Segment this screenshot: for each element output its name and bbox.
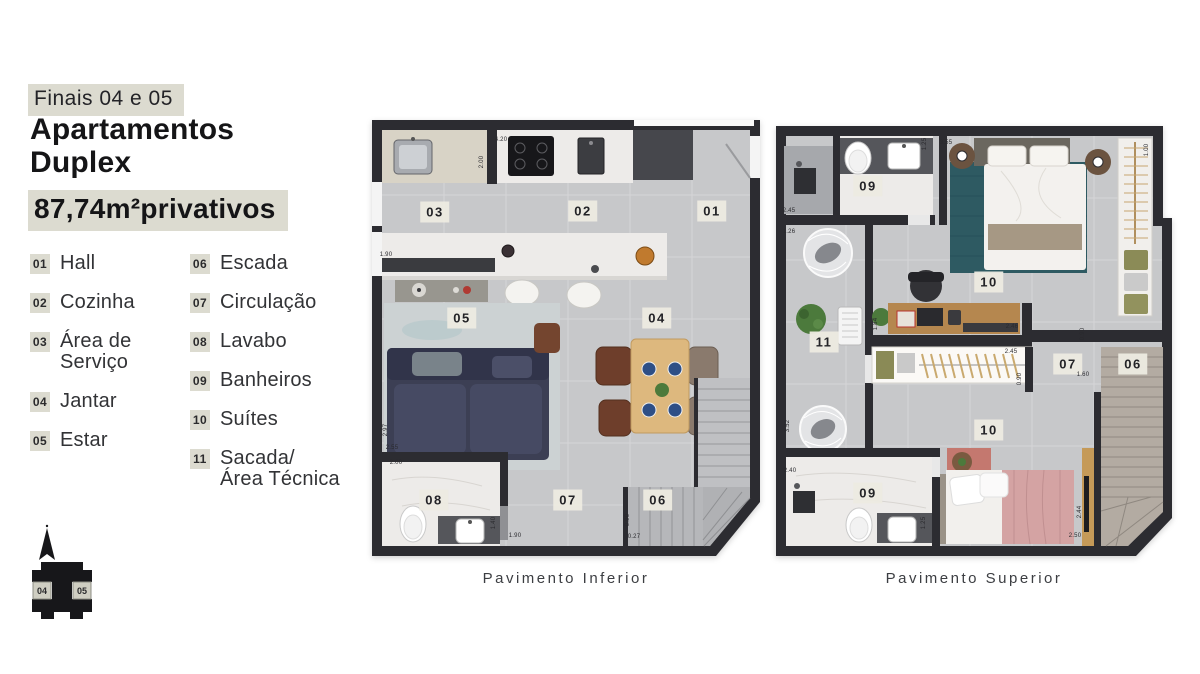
room-label-02: 02: [568, 201, 597, 222]
legend-label: Cozinha: [60, 292, 135, 313]
dimension-label: 2.46: [1006, 324, 1018, 330]
legend-number-badge: 05: [30, 431, 50, 451]
legend-label: Sacada/ Área Técnica: [220, 448, 340, 490]
caption-inferior: Pavimento Inferior: [372, 570, 760, 587]
unit-label-05: 05: [77, 586, 87, 596]
dimension-label: 4.20: [495, 137, 507, 143]
dimension-label: 1.25: [922, 138, 928, 150]
legend-number-badge: 02: [30, 293, 50, 313]
legend-label: Hall: [60, 253, 95, 274]
dimension-label: 2.44: [1077, 506, 1083, 518]
floorplan-superior: 091011070610093.551.251.002.451.261.842.…: [776, 126, 1172, 556]
dimension-label: 1.25: [921, 517, 927, 529]
north-arrow-icon: [30, 524, 64, 567]
room-label-01: 01: [697, 201, 726, 222]
legend-item-03: 03Área de Serviço: [30, 331, 166, 373]
legend-label: Banheiros: [220, 370, 312, 391]
dimension-label: 1.26: [783, 229, 795, 235]
legend-item-09: 09Banheiros: [190, 370, 340, 391]
legend-item-06: 06Escada: [190, 253, 340, 274]
room-label-07: 07: [553, 490, 582, 511]
legend-label: Escada: [220, 253, 288, 274]
legend-item-05: 05Estar: [30, 430, 166, 451]
room-label-09: 09: [853, 176, 882, 197]
legend-column-2: 06Escada07Circulação08Lavabo09Banheiros1…: [190, 253, 340, 508]
page: Finais 04 e 05 Apartamentos Duplex 87,74…: [0, 0, 1200, 674]
room-label-09: 09: [853, 483, 882, 504]
legend-label: Jantar: [60, 391, 117, 412]
legend-item-02: 02Cozinha: [30, 292, 166, 313]
dimension-label: 3.55: [940, 140, 952, 146]
legend-label: Lavabo: [220, 331, 287, 352]
legend-label: Circulação: [220, 292, 316, 313]
dimension-label: 2.45: [783, 208, 795, 214]
room-label-11: 11: [810, 332, 839, 353]
dimension-label: 2.45: [1005, 349, 1017, 355]
dimension-label: 1.90: [509, 533, 521, 539]
room-label-03: 03: [420, 202, 449, 223]
dimension-label: 1.40: [491, 517, 497, 529]
dimension-label: 0.90: [625, 514, 631, 526]
room-label-layer: 03020105040807064.202.001.902.972.552.00…: [372, 120, 760, 556]
room-label-10: 10: [974, 272, 1003, 293]
legend-column-1: 01Hall02Cozinha03Área de Serviço04Jantar…: [30, 253, 166, 508]
dimension-label: 2.97: [383, 424, 389, 436]
legend-number-badge: 08: [190, 332, 210, 352]
dimension-label: 2.50: [1069, 533, 1081, 539]
dimension-label: 2.55: [386, 445, 398, 451]
dimension-label: 1.60: [1077, 372, 1089, 378]
dimension-label: 0.90: [1017, 373, 1023, 385]
unit-label-04: 04: [37, 586, 47, 596]
legend-label: Suítes: [220, 409, 278, 430]
dimension-label: 1.00: [1144, 144, 1150, 156]
dimension-label: 1.84: [873, 318, 879, 330]
room-label-06: 06: [643, 490, 672, 511]
legend-number-badge: 07: [190, 293, 210, 313]
legend-number-badge: 03: [30, 332, 50, 352]
room-label-05: 05: [447, 308, 476, 329]
building-footprint-icon: 04 05: [30, 562, 94, 625]
legend-item-07: 07Circulação: [190, 292, 340, 313]
legend-number-badge: 01: [30, 254, 50, 274]
legend-item-01: 01Hall: [30, 253, 166, 274]
dimension-label: 2.00: [390, 460, 402, 466]
legend-number-badge: 11: [190, 449, 210, 469]
legend-number-badge: 10: [190, 410, 210, 430]
legend-number-badge: 04: [30, 392, 50, 412]
legend-label: Área de Serviço: [60, 331, 131, 373]
units-tag: Finais 04 e 05: [28, 84, 184, 116]
room-legend: 01Hall02Cozinha03Área de Serviço04Jantar…: [30, 253, 340, 508]
legend-item-10: 10Suítes: [190, 409, 340, 430]
legend-number-badge: 06: [190, 254, 210, 274]
legend-item-11: 11Sacada/ Área Técnica: [190, 448, 340, 490]
dimension-label: 0.27: [628, 534, 640, 540]
legend-item-04: 04Jantar: [30, 391, 166, 412]
room-label-10: 10: [974, 420, 1003, 441]
floorplan-inferior: 03020105040807064.202.001.902.972.552.00…: [372, 120, 760, 556]
room-label-06: 06: [1118, 354, 1147, 375]
dimension-label: 1.90: [380, 252, 392, 258]
dimension-label: 2.00: [479, 156, 485, 168]
dimension-label: 0.90: [1080, 328, 1086, 340]
dimension-label: 2.40: [784, 468, 796, 474]
caption-superior: Pavimento Superior: [776, 570, 1172, 587]
legend-number-badge: 09: [190, 371, 210, 391]
legend-label: Estar: [60, 430, 108, 451]
page-title: Apartamentos Duplex: [30, 113, 290, 179]
room-label-layer: 091011070610093.551.251.002.451.261.842.…: [776, 126, 1172, 556]
dimension-label: 3.52: [785, 420, 791, 432]
legend-item-08: 08Lavabo: [190, 331, 340, 352]
room-label-04: 04: [642, 308, 671, 329]
room-label-08: 08: [419, 490, 448, 511]
private-area-badge: 87,74m²privativos: [28, 190, 288, 231]
